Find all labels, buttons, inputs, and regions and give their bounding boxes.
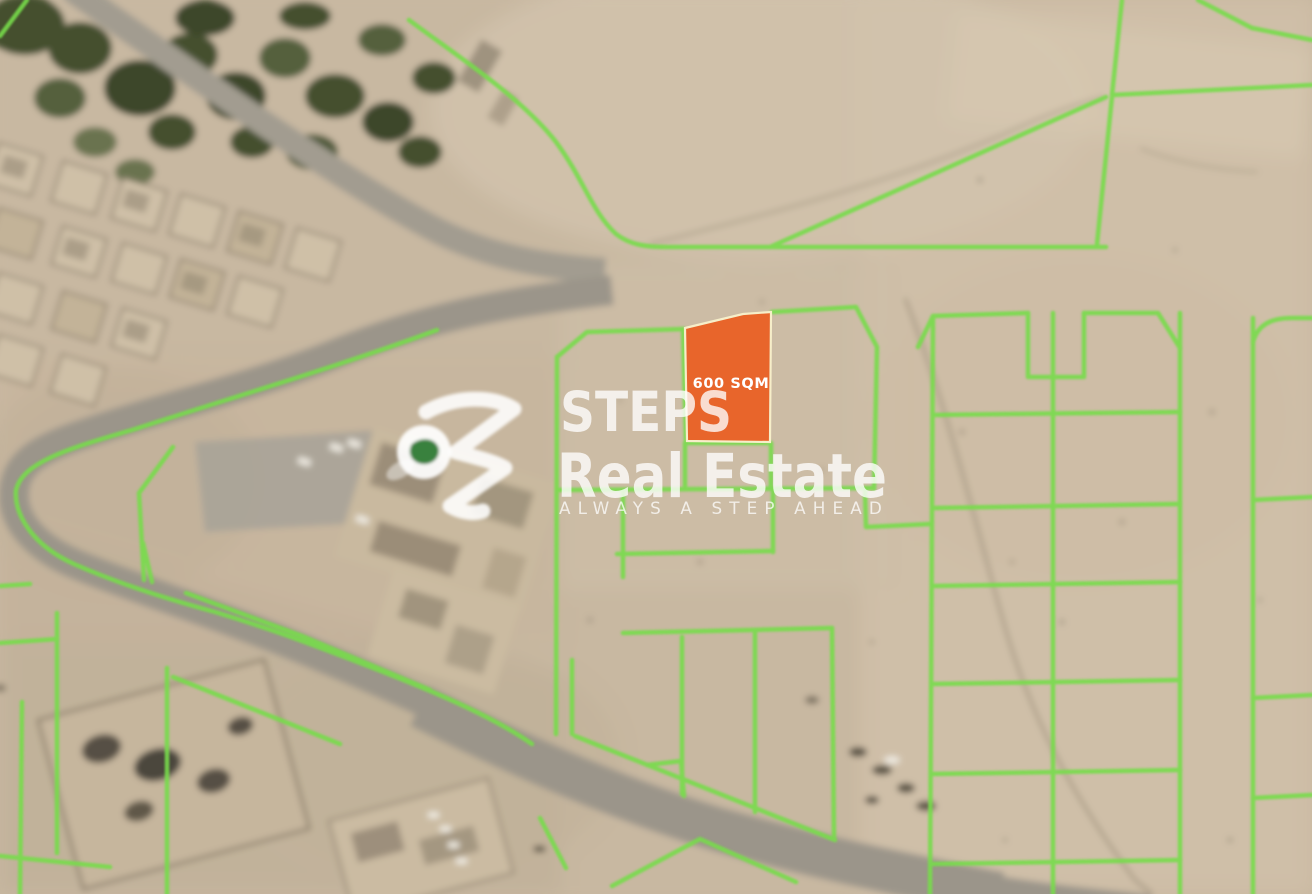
- satellite-map: 600 SQM STEPS Real Estate ALWAYS A STEP …: [0, 0, 1312, 894]
- watermark-tagline: ALWAYS A STEP AHEAD: [559, 499, 889, 518]
- watermark-brand-name: STEPS: [560, 380, 732, 444]
